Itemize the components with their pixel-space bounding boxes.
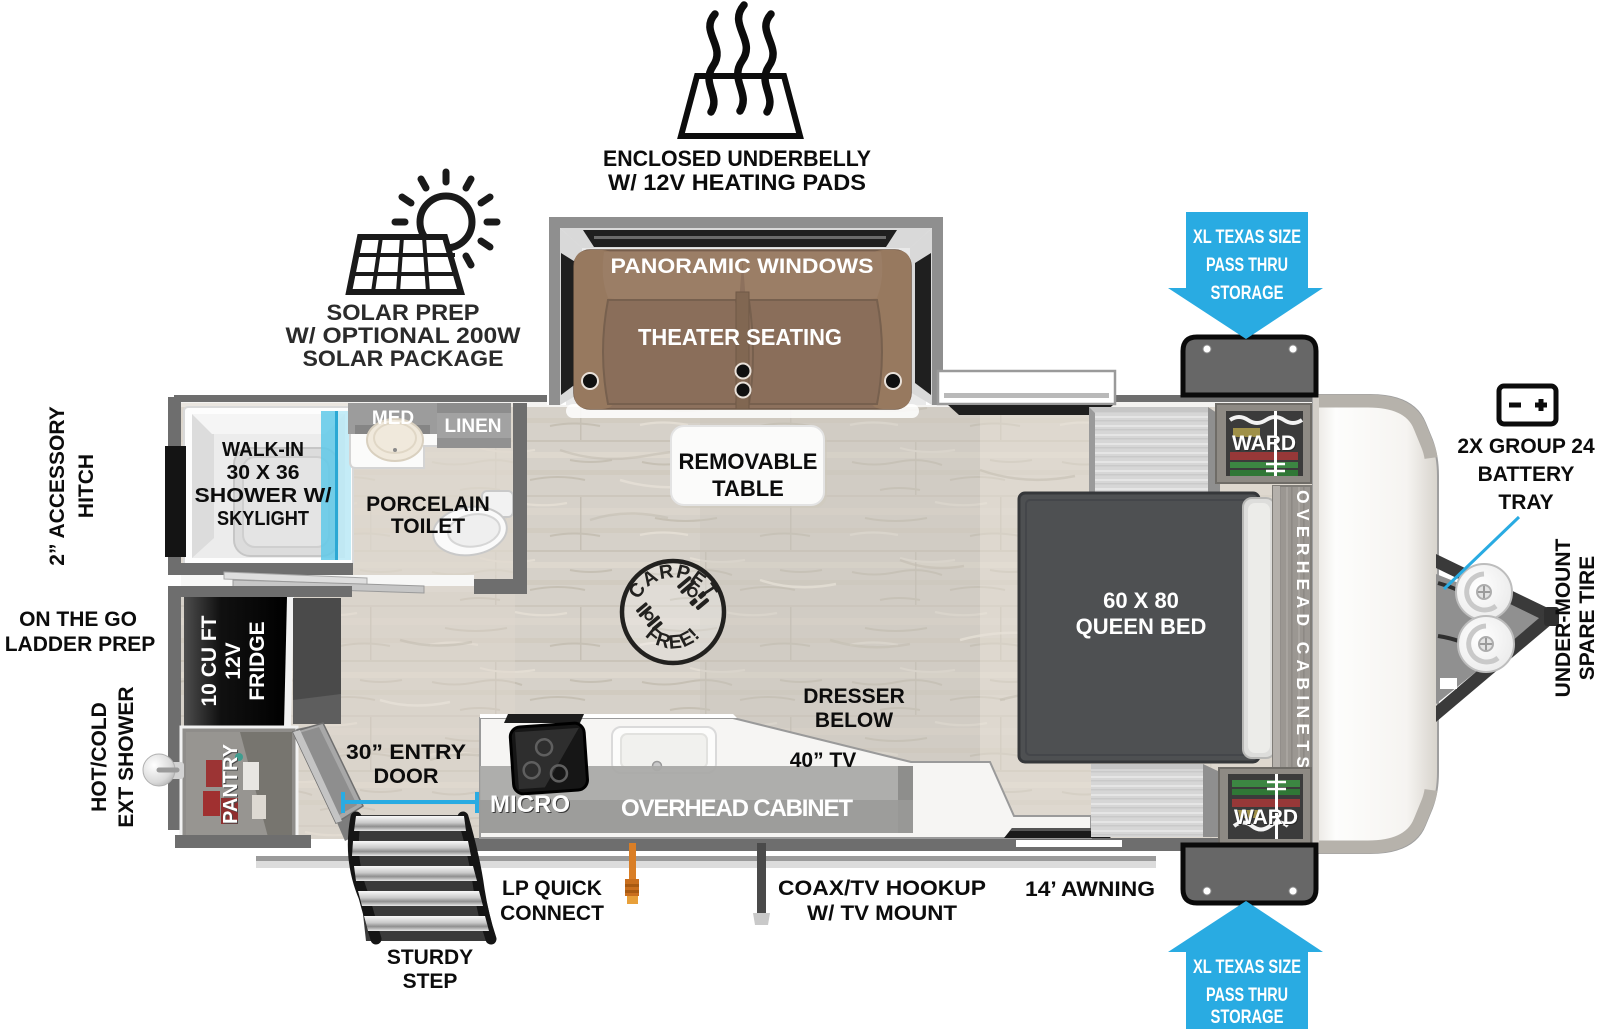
svg-text:PASS THRU: PASS THRU bbox=[1206, 984, 1288, 1006]
svg-text:10 CU FT: 10 CU FT bbox=[198, 615, 221, 706]
svg-text:LP QUICK: LP QUICK bbox=[502, 877, 602, 900]
svg-text:14’ AWNING: 14’ AWNING bbox=[1025, 878, 1155, 901]
svg-text:HITCH: HITCH bbox=[75, 454, 98, 518]
svg-text:SPARE TIRE: SPARE TIRE bbox=[1576, 556, 1599, 680]
svg-text:PANORAMIC WINDOWS: PANORAMIC WINDOWS bbox=[611, 255, 874, 278]
svg-text:MED: MED bbox=[372, 408, 414, 429]
svg-text:BELOW: BELOW bbox=[815, 709, 893, 732]
svg-text:PASS THRU: PASS THRU bbox=[1206, 254, 1288, 276]
svg-text:STORAGE: STORAGE bbox=[1211, 1006, 1284, 1028]
svg-text:TRAY: TRAY bbox=[1498, 491, 1553, 514]
svg-text:MICRO: MICRO bbox=[490, 791, 570, 818]
svg-text:HOT/COLD: HOT/COLD bbox=[88, 702, 111, 812]
svg-text:2” ACCESSORY: 2” ACCESSORY bbox=[46, 406, 69, 565]
svg-text:ENCLOSED UNDERBELLY: ENCLOSED UNDERBELLY bbox=[603, 146, 871, 171]
svg-text:2X GROUP 24: 2X GROUP 24 bbox=[1457, 435, 1595, 458]
svg-text:SKYLIGHT: SKYLIGHT bbox=[217, 508, 309, 530]
svg-text:WARD: WARD bbox=[1234, 806, 1298, 829]
svg-text:DRESSER: DRESSER bbox=[803, 685, 905, 708]
svg-text:STORAGE: STORAGE bbox=[1211, 282, 1284, 304]
svg-text:REMOVABLE: REMOVABLE bbox=[679, 449, 818, 474]
svg-text:TOILET: TOILET bbox=[391, 515, 465, 538]
svg-text:XL TEXAS SIZE: XL TEXAS SIZE bbox=[1193, 226, 1301, 248]
svg-text:SHOWER W/: SHOWER W/ bbox=[195, 485, 332, 507]
svg-text:XL TEXAS SIZE: XL TEXAS SIZE bbox=[1193, 956, 1301, 978]
svg-text:STURDY: STURDY bbox=[387, 946, 473, 969]
svg-text:CONNECT: CONNECT bbox=[500, 902, 604, 925]
svg-text:SOLAR PACKAGE: SOLAR PACKAGE bbox=[303, 346, 504, 371]
svg-text:PANTRY: PANTRY bbox=[220, 743, 242, 824]
svg-text:LADDER PREP: LADDER PREP bbox=[5, 633, 156, 656]
svg-text:BATTERY: BATTERY bbox=[1478, 463, 1575, 486]
svg-text:STEP: STEP bbox=[403, 970, 458, 993]
svg-text:12V: 12V bbox=[222, 642, 245, 679]
svg-text:ON THE GO: ON THE GO bbox=[19, 608, 137, 631]
svg-text:EXT SHOWER: EXT SHOWER bbox=[115, 686, 138, 827]
svg-text:W/ TV MOUNT: W/ TV MOUNT bbox=[807, 902, 957, 925]
svg-text:30” ENTRY: 30” ENTRY bbox=[346, 741, 466, 764]
svg-text:THEATER SEATING: THEATER SEATING bbox=[638, 324, 842, 350]
svg-text:SOLAR PREP: SOLAR PREP bbox=[327, 300, 480, 325]
svg-text:DOOR: DOOR bbox=[374, 765, 439, 788]
svg-text:TABLE: TABLE bbox=[712, 476, 784, 501]
svg-text:OVERHEAD CABINET: OVERHEAD CABINET bbox=[621, 795, 853, 822]
svg-text:PORCELAIN: PORCELAIN bbox=[366, 493, 490, 516]
svg-text:COAX/TV HOOKUP: COAX/TV HOOKUP bbox=[778, 877, 986, 900]
svg-text:W/ 12V HEATING PADS: W/ 12V HEATING PADS bbox=[608, 170, 866, 195]
svg-text:FRIDGE: FRIDGE bbox=[246, 621, 269, 700]
svg-text:WARD: WARD bbox=[1232, 432, 1296, 455]
svg-text:LINEN: LINEN bbox=[445, 416, 502, 437]
svg-text:QUEEN BED: QUEEN BED bbox=[1076, 614, 1207, 639]
svg-text:40” TV: 40” TV bbox=[790, 749, 857, 772]
svg-text:WALK-IN: WALK-IN bbox=[222, 439, 304, 461]
svg-text:30 X 36: 30 X 36 bbox=[227, 462, 300, 484]
svg-text:W/ OPTIONAL 200W: W/ OPTIONAL 200W bbox=[286, 323, 521, 348]
svg-text:60 X 80: 60 X 80 bbox=[1103, 588, 1179, 613]
svg-text:UNDER-MOUNT: UNDER-MOUNT bbox=[1552, 539, 1575, 698]
